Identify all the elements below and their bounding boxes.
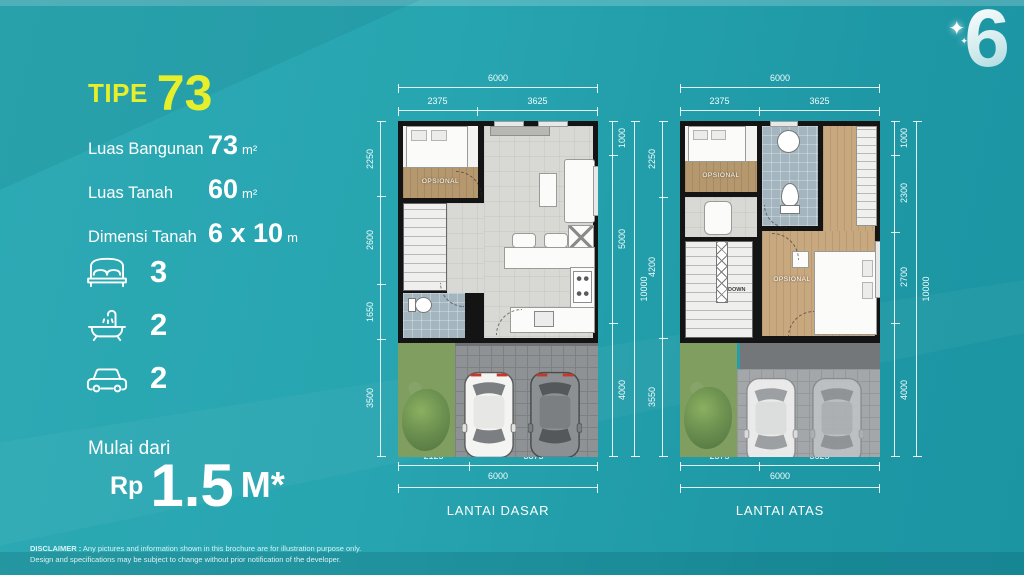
- car-icon: [86, 362, 128, 394]
- dim-label-right-seg: 1000: [617, 116, 627, 160]
- dim-line-right-segments: [612, 121, 613, 457]
- window: [770, 121, 798, 127]
- price-block: Mulai dari Rp 1.5 M*: [88, 438, 285, 510]
- dim-tick: [659, 197, 668, 198]
- dim-line-top-total: [680, 87, 880, 88]
- dim-label-right-seg: 4000: [899, 368, 909, 412]
- spec-label: Luas Tanah: [88, 184, 206, 203]
- window: [538, 121, 568, 127]
- feature-bedrooms: 3: [86, 254, 167, 290]
- bed: [814, 251, 877, 335]
- car-white-ghost: [744, 373, 798, 457]
- dim-label-left-seg: 2250: [365, 137, 375, 181]
- dim-line-right-segments: [894, 121, 895, 457]
- plan-canvas-ground-floor: OPSIONAL UP: [398, 121, 598, 457]
- hall-table: [704, 201, 732, 235]
- dim-tick: [477, 107, 478, 116]
- dim-tick: [659, 338, 668, 339]
- background-facet: [0, 0, 1024, 6]
- stairs: [403, 203, 447, 291]
- type-title: TIPE 73: [88, 72, 212, 115]
- dim-line-top-total: [398, 87, 598, 88]
- dim-label-right-seg: 1000: [899, 116, 909, 160]
- dim-tick: [469, 462, 470, 471]
- dim-line-bottom-total: [398, 487, 598, 488]
- spec-list: Luas Bangunan 73 m² Luas Tanah 60 m² Dim…: [88, 130, 298, 262]
- dim-tick: [377, 284, 386, 285]
- pillow: [411, 130, 427, 141]
- dim-label-bottom-total: 6000: [680, 471, 880, 481]
- bathtub-icon: [86, 307, 128, 343]
- price-row: Rp 1.5 M*: [110, 462, 285, 510]
- dining-chair: [512, 233, 536, 248]
- plan-caption: LANTAI DASAR: [398, 503, 598, 518]
- stove: [573, 271, 592, 303]
- pillow: [862, 260, 873, 277]
- car-gray: [528, 367, 582, 457]
- disclaimer: DISCLAIMER : Any pictures and informatio…: [30, 543, 390, 566]
- dim-tick: [377, 339, 386, 340]
- opsional-label: OPSIONAL: [764, 276, 820, 283]
- stair-railing: [716, 241, 728, 303]
- wardrobe: [856, 126, 877, 226]
- bed: [406, 126, 468, 168]
- dim-line-bottom-segments: [398, 465, 598, 466]
- kerb-line: [455, 343, 598, 346]
- dim-label-top-seg: 2375: [680, 96, 759, 106]
- feature-bathrooms: 2: [86, 307, 167, 343]
- stairs-down-label: DOWN: [728, 287, 745, 293]
- bed: [688, 126, 746, 162]
- price-unit: M*: [241, 464, 285, 510]
- dim-label-right-seg: 5000: [617, 217, 627, 261]
- dim-line-top-segments: [398, 110, 598, 111]
- dim-tick: [609, 323, 618, 324]
- dim-label-left-seg: 3550: [647, 375, 657, 419]
- toilet-bowl: [415, 297, 432, 313]
- dim-line-left-segments: [380, 121, 381, 457]
- feature-list: 3 2 2: [86, 254, 167, 413]
- dim-tick: [891, 232, 900, 233]
- dim-line-bottom-total: [680, 487, 880, 488]
- pillow: [693, 130, 708, 140]
- dim-label-top-total: 6000: [398, 73, 598, 83]
- dim-tick: [759, 462, 760, 471]
- spec-unit: m²: [242, 142, 257, 157]
- brand-logo: ✦ ✦ 6: [964, 2, 1010, 76]
- spec-value: 73: [208, 130, 238, 161]
- dim-line-right-total: [634, 121, 635, 457]
- feature-count: 3: [150, 254, 167, 290]
- sofa: [564, 159, 595, 223]
- feature-count: 2: [150, 307, 167, 343]
- dim-tick: [759, 107, 760, 116]
- dim-label-left-seg: 2600: [365, 218, 375, 262]
- coffee-table: [539, 173, 557, 207]
- type-title-prefix: TIPE: [88, 78, 148, 115]
- dim-line-bottom-segments: [680, 465, 880, 466]
- spec-label: Dimensi Tanah: [88, 228, 206, 247]
- brochure-page: ✦ ✦ 6 TIPE 73 Luas Bangunan 73 m² Luas T…: [0, 0, 1024, 575]
- dim-label-top-seg: 2375: [398, 96, 477, 106]
- pillow: [862, 282, 873, 299]
- dim-label-left-seg: 1650: [365, 290, 375, 334]
- disclaimer-line2: Design and specifications may be subject…: [30, 555, 341, 564]
- opsional-label: OPSIONAL: [685, 172, 757, 179]
- dim-label-right-seg: 2300: [899, 171, 909, 215]
- pillow: [431, 130, 447, 141]
- dining-chair: [544, 233, 568, 248]
- tv-cabinet: [490, 126, 550, 136]
- floor-plan-lantai-dasar: 6000 2375 3625 2250 2600 1650 3500 1000 …: [398, 121, 598, 457]
- car-gray-ghost: [810, 373, 864, 457]
- dim-label-bottom-total: 6000: [398, 471, 598, 481]
- dim-tick: [377, 196, 386, 197]
- window: [593, 166, 598, 216]
- sparkle-icon: ✦: [960, 36, 968, 47]
- dim-line-top-segments: [680, 110, 880, 111]
- dim-label-top-seg: 3625: [759, 96, 880, 106]
- bed-icon: [86, 255, 128, 289]
- dim-label-left-seg: 3500: [365, 376, 375, 420]
- sink: [777, 130, 800, 153]
- pillow: [711, 130, 726, 140]
- toilet-bowl: [781, 183, 799, 207]
- type-title-number: 73: [157, 72, 213, 115]
- sink: [534, 311, 554, 327]
- plan-caption: LANTAI ATAS: [680, 503, 880, 518]
- price-amount: 1.5: [150, 462, 233, 510]
- foyer-floor: [447, 203, 484, 293]
- feature-count: 2: [150, 360, 167, 396]
- spec-unit: m: [287, 230, 298, 245]
- spec-row-luas-tanah: Luas Tanah 60 m²: [88, 174, 298, 205]
- floor-plan-lantai-atas: 6000 2375 3625 2250 4200 3550 1000 2300 …: [680, 121, 880, 457]
- dim-label-left-seg: 4200: [647, 245, 657, 289]
- disclaimer-heading: DISCLAIMER :: [30, 544, 81, 553]
- spec-label: Luas Bangunan: [88, 140, 206, 159]
- dim-line-right-total: [916, 121, 917, 457]
- spec-unit: m²: [242, 186, 257, 201]
- price-currency: Rp: [110, 472, 143, 510]
- window: [875, 241, 880, 298]
- logo-numeral: 6: [964, 0, 1010, 84]
- spec-row-dimensi-tanah: Dimensi Tanah 6 x 10 m: [88, 218, 298, 249]
- disclaimer-line1: Any pictures and information shown in th…: [83, 544, 361, 553]
- dim-line-left-segments: [662, 121, 663, 457]
- window: [494, 121, 524, 127]
- dim-label-left-seg: 2250: [647, 137, 657, 181]
- dim-label-right-seg: 2700: [899, 255, 909, 299]
- carport-roof: [740, 343, 880, 371]
- dim-label-right-total: 10000: [921, 267, 931, 311]
- spec-value: 60: [208, 174, 238, 205]
- dim-label-top-total: 6000: [680, 73, 880, 83]
- dim-label-right-seg: 4000: [617, 368, 627, 412]
- feature-carports: 2: [86, 360, 167, 396]
- spec-value: 6 x 10: [208, 218, 283, 249]
- plan-canvas-upper-floor: OPSIONAL DOWN OPSIONAL: [680, 121, 880, 457]
- car-white: [462, 367, 516, 457]
- spec-row-luas-bangunan: Luas Bangunan 73 m²: [88, 130, 298, 161]
- dim-label-top-seg: 3625: [477, 96, 598, 106]
- dining-table: [504, 247, 595, 269]
- dim-tick: [891, 323, 900, 324]
